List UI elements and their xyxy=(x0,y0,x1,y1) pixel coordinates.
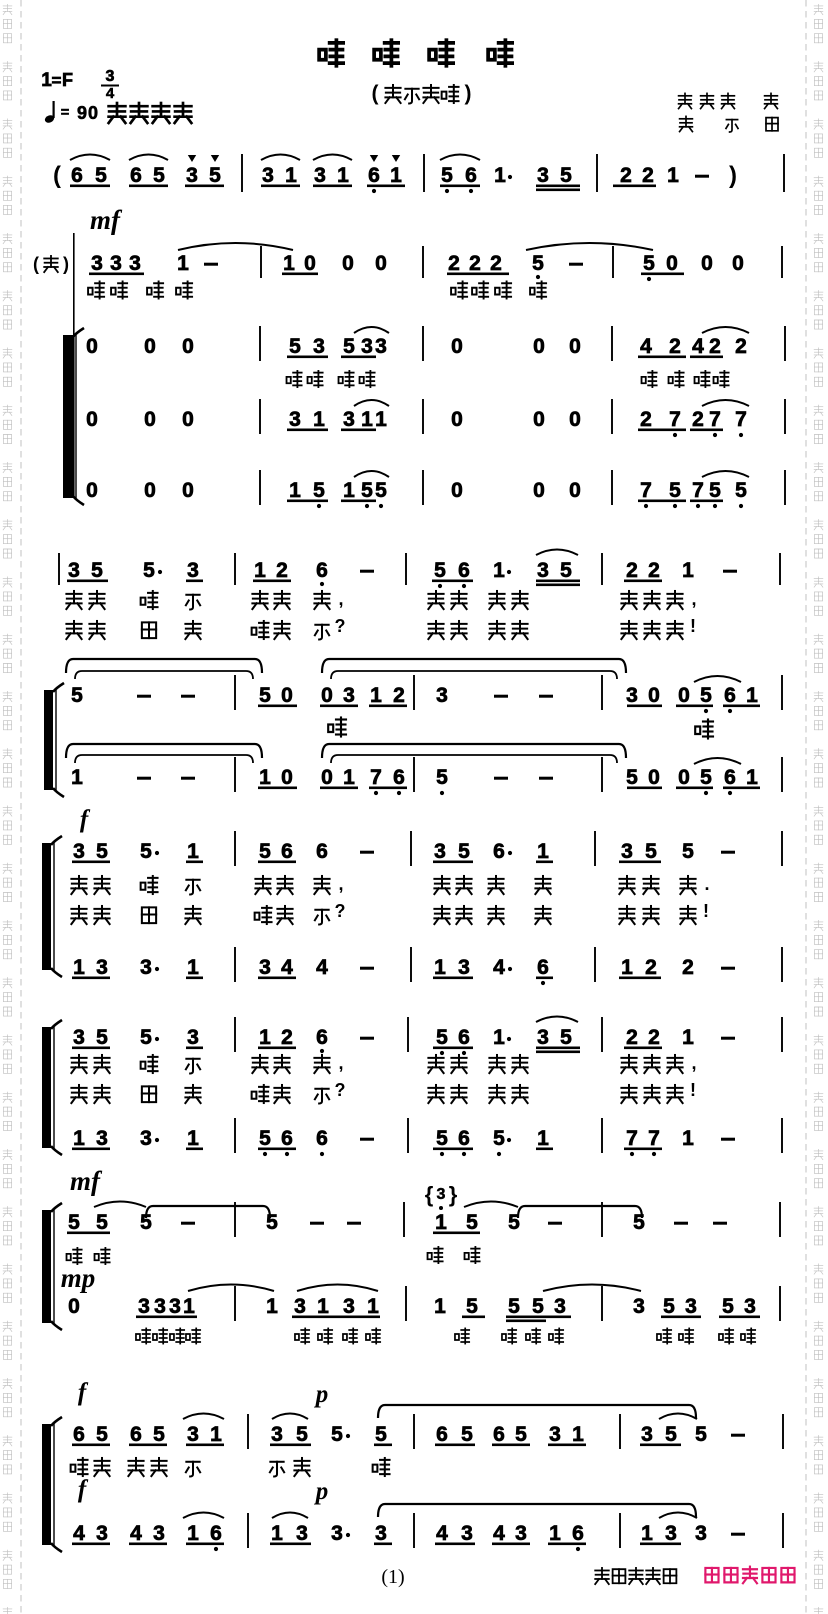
svg-text:5: 5 xyxy=(91,559,103,582)
svg-text:1: 1 xyxy=(434,956,446,979)
svg-text:3: 3 xyxy=(375,335,387,358)
svg-text:1: 1 xyxy=(285,164,297,187)
svg-text:5: 5 xyxy=(700,684,712,707)
svg-text:3: 3 xyxy=(343,408,355,431)
svg-text:3: 3 xyxy=(633,1295,645,1318)
svg-text:5: 5 xyxy=(296,1423,308,1446)
svg-text:6: 6 xyxy=(316,840,328,863)
svg-text:7: 7 xyxy=(692,479,704,502)
svg-text:1: 1 xyxy=(375,408,387,431)
svg-text:0: 0 xyxy=(648,766,660,789)
svg-text:4: 4 xyxy=(640,335,652,358)
svg-text:0: 0 xyxy=(666,252,678,275)
svg-text:5: 5 xyxy=(266,1211,278,1234)
svg-text:1: 1 xyxy=(746,766,758,789)
svg-text:3: 3 xyxy=(458,956,470,979)
svg-text:3: 3 xyxy=(153,1522,165,1545)
svg-text:5: 5 xyxy=(375,479,387,502)
svg-text:5: 5 xyxy=(140,1026,152,1049)
svg-text:5: 5 xyxy=(140,840,152,863)
svg-text:7: 7 xyxy=(735,408,747,431)
svg-text:6: 6 xyxy=(465,164,477,187)
svg-text:5: 5 xyxy=(663,1295,675,1318)
svg-text:4: 4 xyxy=(436,1522,448,1545)
svg-text:1: 1 xyxy=(494,164,506,187)
svg-text:1: 1 xyxy=(493,1026,505,1049)
svg-text:6: 6 xyxy=(281,840,293,863)
svg-text:3: 3 xyxy=(96,1127,108,1150)
svg-text:2: 2 xyxy=(469,252,481,275)
svg-text:?: ? xyxy=(335,1080,346,1100)
svg-text:F: F xyxy=(62,70,73,90)
svg-text:5: 5 xyxy=(560,164,572,187)
svg-text:4: 4 xyxy=(106,85,115,102)
svg-text:1: 1 xyxy=(343,479,355,502)
svg-text:1: 1 xyxy=(73,956,85,979)
svg-text:3: 3 xyxy=(129,252,141,275)
svg-text:1: 1 xyxy=(187,840,199,863)
svg-text:5: 5 xyxy=(313,479,325,502)
svg-text:1: 1 xyxy=(682,559,694,582)
svg-text:0: 0 xyxy=(451,408,463,431)
svg-text:2: 2 xyxy=(626,559,638,582)
svg-text:2: 2 xyxy=(448,252,460,275)
svg-text:1: 1 xyxy=(370,684,382,707)
svg-text:5: 5 xyxy=(436,1127,448,1150)
svg-text:5: 5 xyxy=(375,1423,387,1446)
svg-text:7: 7 xyxy=(669,408,681,431)
svg-text:1: 1 xyxy=(537,840,549,863)
svg-text:1: 1 xyxy=(259,766,271,789)
svg-text:5: 5 xyxy=(645,840,657,863)
svg-text:3: 3 xyxy=(313,335,325,358)
svg-text:2: 2 xyxy=(735,335,747,358)
svg-text:5: 5 xyxy=(532,252,544,275)
svg-text:6: 6 xyxy=(458,1127,470,1150)
svg-text:6: 6 xyxy=(130,164,142,187)
svg-text:3: 3 xyxy=(549,1423,561,1446)
svg-text:0: 0 xyxy=(732,252,744,275)
svg-text:1: 1 xyxy=(187,1522,199,1545)
svg-text:5: 5 xyxy=(515,1423,527,1446)
svg-text:0: 0 xyxy=(451,335,463,358)
svg-text:(1): (1) xyxy=(381,1566,404,1588)
svg-text:3: 3 xyxy=(271,1423,283,1446)
svg-text:=: = xyxy=(52,71,62,90)
svg-text:=: = xyxy=(61,104,70,121)
svg-text:5: 5 xyxy=(259,1127,271,1150)
svg-text:5: 5 xyxy=(669,479,681,502)
svg-text:1: 1 xyxy=(435,1211,447,1234)
svg-text:5: 5 xyxy=(343,335,355,358)
svg-text:6: 6 xyxy=(130,1423,142,1446)
svg-text:4: 4 xyxy=(130,1522,142,1545)
svg-text:1: 1 xyxy=(313,408,325,431)
svg-text:1: 1 xyxy=(549,1522,561,1545)
svg-text:0: 0 xyxy=(451,479,463,502)
svg-text:0: 0 xyxy=(533,335,545,358)
svg-text:,: , xyxy=(338,874,343,894)
svg-text:6: 6 xyxy=(436,1423,448,1446)
svg-text:6: 6 xyxy=(572,1522,584,1545)
svg-text:0: 0 xyxy=(182,479,194,502)
svg-text:6: 6 xyxy=(210,1522,222,1545)
svg-text:1: 1 xyxy=(271,1522,283,1545)
svg-text:4: 4 xyxy=(493,956,505,979)
svg-text:3: 3 xyxy=(187,1026,199,1049)
svg-text:0: 0 xyxy=(86,408,98,431)
svg-text:2: 2 xyxy=(393,684,405,707)
svg-text:0: 0 xyxy=(86,335,98,358)
svg-text:3: 3 xyxy=(106,68,115,85)
svg-text:3: 3 xyxy=(289,408,301,431)
svg-text:5: 5 xyxy=(700,766,712,789)
svg-text:3: 3 xyxy=(138,1295,150,1318)
svg-text:3: 3 xyxy=(187,1423,199,1446)
svg-text:0: 0 xyxy=(321,684,333,707)
svg-text:(: ( xyxy=(372,82,379,105)
svg-text:!: ! xyxy=(690,1080,696,1100)
svg-text:?: ? xyxy=(335,901,346,921)
svg-text:2: 2 xyxy=(276,559,288,582)
svg-text:6: 6 xyxy=(73,1423,85,1446)
svg-text:0: 0 xyxy=(569,335,581,358)
svg-text:3: 3 xyxy=(73,1026,85,1049)
svg-text:0: 0 xyxy=(144,335,156,358)
svg-text:1: 1 xyxy=(177,252,189,275)
svg-text:5: 5 xyxy=(695,1423,707,1446)
svg-text:1: 1 xyxy=(537,1127,549,1150)
svg-text:1: 1 xyxy=(641,1522,653,1545)
svg-text:1: 1 xyxy=(289,479,301,502)
svg-text:5: 5 xyxy=(560,559,572,582)
svg-text:1: 1 xyxy=(621,956,633,979)
svg-text:3: 3 xyxy=(140,1127,152,1150)
svg-text:6: 6 xyxy=(71,164,83,187)
svg-text:2: 2 xyxy=(669,335,681,358)
svg-text:3: 3 xyxy=(296,1522,308,1545)
svg-text:5: 5 xyxy=(735,479,747,502)
svg-text:2: 2 xyxy=(645,956,657,979)
svg-text:1: 1 xyxy=(667,164,679,187)
svg-text:1: 1 xyxy=(682,1127,694,1150)
svg-text:9: 9 xyxy=(77,103,87,123)
svg-text:{: { xyxy=(425,1182,434,1207)
svg-text:3: 3 xyxy=(537,1026,549,1049)
svg-text:3: 3 xyxy=(361,335,373,358)
svg-text:6: 6 xyxy=(537,956,549,979)
svg-text:5: 5 xyxy=(153,1423,165,1446)
svg-text:5: 5 xyxy=(560,1026,572,1049)
svg-text:2: 2 xyxy=(648,1026,660,1049)
svg-text:5: 5 xyxy=(153,164,165,187)
svg-text:0: 0 xyxy=(182,335,194,358)
svg-text:3: 3 xyxy=(685,1295,697,1318)
svg-text:5: 5 xyxy=(71,684,83,707)
svg-text:5: 5 xyxy=(682,840,694,863)
svg-text:): ) xyxy=(63,254,69,274)
svg-text:0: 0 xyxy=(701,252,713,275)
svg-text:1: 1 xyxy=(572,1423,584,1446)
svg-text:5: 5 xyxy=(461,1423,473,1446)
svg-text:1: 1 xyxy=(187,1127,199,1150)
svg-text:5: 5 xyxy=(436,766,448,789)
svg-text:3: 3 xyxy=(259,956,271,979)
svg-text:5: 5 xyxy=(96,1211,108,1234)
svg-text:3: 3 xyxy=(314,164,326,187)
svg-text:3: 3 xyxy=(331,1522,343,1545)
svg-text:3: 3 xyxy=(665,1522,677,1545)
svg-text:6: 6 xyxy=(724,684,736,707)
svg-text:5: 5 xyxy=(436,1026,448,1049)
svg-text:5: 5 xyxy=(143,559,155,582)
svg-text:): ) xyxy=(729,162,737,189)
svg-text:3: 3 xyxy=(695,1522,707,1545)
svg-text:0: 0 xyxy=(678,684,690,707)
svg-text:5: 5 xyxy=(96,840,108,863)
svg-text:1: 1 xyxy=(283,252,295,275)
svg-text:5: 5 xyxy=(493,1127,505,1150)
svg-text:7: 7 xyxy=(640,479,652,502)
svg-text:3: 3 xyxy=(744,1295,756,1318)
svg-text:0: 0 xyxy=(281,766,293,789)
svg-text:mf: mf xyxy=(90,205,123,235)
svg-text:p: p xyxy=(314,1478,329,1505)
svg-text:5: 5 xyxy=(626,766,638,789)
svg-text:5: 5 xyxy=(508,1295,520,1318)
svg-text:,: , xyxy=(691,589,696,609)
svg-text:3: 3 xyxy=(554,1295,566,1318)
svg-text:3: 3 xyxy=(641,1423,653,1446)
svg-text:5: 5 xyxy=(665,1423,677,1446)
svg-text:4: 4 xyxy=(692,335,704,358)
svg-text:7: 7 xyxy=(709,408,721,431)
svg-text:1: 1 xyxy=(183,1295,195,1318)
svg-text:1: 1 xyxy=(71,766,83,789)
svg-text:4: 4 xyxy=(281,956,293,979)
svg-text:1: 1 xyxy=(337,164,349,187)
svg-text:5: 5 xyxy=(68,1211,80,1234)
svg-text:5: 5 xyxy=(722,1295,734,1318)
svg-text:3: 3 xyxy=(537,559,549,582)
svg-text:3: 3 xyxy=(621,840,633,863)
svg-text:1: 1 xyxy=(434,1295,446,1318)
svg-text:5: 5 xyxy=(643,252,655,275)
svg-text:5: 5 xyxy=(709,479,721,502)
svg-text:1: 1 xyxy=(266,1295,278,1318)
svg-text:0: 0 xyxy=(144,479,156,502)
svg-text:3: 3 xyxy=(96,1522,108,1545)
svg-text:3: 3 xyxy=(461,1522,473,1545)
svg-text:0: 0 xyxy=(304,252,316,275)
svg-text:): ) xyxy=(465,82,472,105)
svg-text:5: 5 xyxy=(96,1423,108,1446)
svg-text:6: 6 xyxy=(493,1423,505,1446)
svg-text:1: 1 xyxy=(317,1295,329,1318)
svg-text:1: 1 xyxy=(343,766,355,789)
svg-text:2: 2 xyxy=(490,252,502,275)
svg-text:3: 3 xyxy=(434,840,446,863)
svg-text:5: 5 xyxy=(259,684,271,707)
svg-text:!: ! xyxy=(703,901,709,921)
svg-text:2: 2 xyxy=(682,956,694,979)
svg-text:(: ( xyxy=(33,254,39,274)
svg-text:1: 1 xyxy=(390,164,402,187)
svg-text:3: 3 xyxy=(140,956,152,979)
svg-text:6: 6 xyxy=(281,1127,293,1150)
svg-text:mf: mf xyxy=(70,1166,103,1196)
svg-text:3: 3 xyxy=(91,252,103,275)
svg-text:0: 0 xyxy=(533,408,545,431)
svg-text:5: 5 xyxy=(361,479,373,502)
svg-text:5: 5 xyxy=(434,559,446,582)
svg-text:0: 0 xyxy=(86,479,98,502)
svg-text:6: 6 xyxy=(316,1026,328,1049)
svg-text:.: . xyxy=(704,874,709,894)
svg-text:6: 6 xyxy=(316,559,328,582)
svg-text:0: 0 xyxy=(569,408,581,431)
svg-text:mp: mp xyxy=(61,1263,96,1293)
svg-text:5: 5 xyxy=(289,335,301,358)
svg-text:6: 6 xyxy=(458,559,470,582)
svg-text:3: 3 xyxy=(294,1295,306,1318)
svg-text:3: 3 xyxy=(375,1522,387,1545)
svg-text:6: 6 xyxy=(393,766,405,789)
svg-text:5: 5 xyxy=(331,1423,343,1446)
svg-text:6: 6 xyxy=(493,840,505,863)
svg-text:4: 4 xyxy=(493,1522,505,1545)
svg-text:3: 3 xyxy=(262,164,274,187)
svg-text:,: , xyxy=(691,1053,696,1073)
svg-text:?: ? xyxy=(335,616,346,636)
svg-text:5: 5 xyxy=(259,840,271,863)
svg-text:3: 3 xyxy=(187,559,199,582)
svg-text:3: 3 xyxy=(96,956,108,979)
svg-text:6: 6 xyxy=(724,766,736,789)
svg-text:,: , xyxy=(338,589,343,609)
svg-text:4: 4 xyxy=(316,956,328,979)
svg-text:(: ( xyxy=(53,162,61,189)
svg-text:0: 0 xyxy=(342,252,354,275)
svg-text:5: 5 xyxy=(466,1211,478,1234)
svg-text:1: 1 xyxy=(254,559,266,582)
svg-text:1: 1 xyxy=(259,1026,271,1049)
svg-text:2: 2 xyxy=(626,1026,638,1049)
svg-text:0: 0 xyxy=(648,684,660,707)
svg-text:1: 1 xyxy=(746,684,758,707)
svg-text:0: 0 xyxy=(88,103,98,123)
svg-text:1: 1 xyxy=(493,559,505,582)
svg-text:3: 3 xyxy=(437,1186,446,1203)
svg-text:2: 2 xyxy=(640,408,652,431)
svg-text:5: 5 xyxy=(441,164,453,187)
svg-text:}: } xyxy=(449,1182,458,1207)
svg-text:3: 3 xyxy=(110,252,122,275)
svg-text:1: 1 xyxy=(187,956,199,979)
svg-text:3: 3 xyxy=(169,1295,181,1318)
svg-text:0: 0 xyxy=(144,408,156,431)
svg-text:3: 3 xyxy=(626,684,638,707)
svg-text:p: p xyxy=(314,1381,329,1408)
svg-text:0: 0 xyxy=(375,252,387,275)
svg-text:5: 5 xyxy=(95,164,107,187)
svg-text:1: 1 xyxy=(361,408,373,431)
svg-text:3: 3 xyxy=(73,840,85,863)
svg-text:0: 0 xyxy=(678,766,690,789)
svg-text:5: 5 xyxy=(633,1211,645,1234)
svg-text:2: 2 xyxy=(620,164,632,187)
svg-text:0: 0 xyxy=(569,479,581,502)
svg-text:2: 2 xyxy=(648,559,660,582)
svg-text:3: 3 xyxy=(343,684,355,707)
svg-text:3: 3 xyxy=(537,164,549,187)
svg-text:2: 2 xyxy=(709,335,721,358)
svg-text:0: 0 xyxy=(68,1295,80,1318)
svg-text:5: 5 xyxy=(96,1026,108,1049)
svg-text:0: 0 xyxy=(281,684,293,707)
svg-text:6: 6 xyxy=(316,1127,328,1150)
svg-text:3: 3 xyxy=(436,684,448,707)
svg-text:1: 1 xyxy=(210,1423,222,1446)
svg-text:5: 5 xyxy=(209,164,221,187)
svg-text:5: 5 xyxy=(532,1295,544,1318)
svg-text:,: , xyxy=(338,1053,343,1073)
svg-text:6: 6 xyxy=(368,164,380,187)
svg-text:2: 2 xyxy=(692,408,704,431)
svg-text:7: 7 xyxy=(626,1127,638,1150)
svg-text:3: 3 xyxy=(343,1295,355,1318)
svg-text:0: 0 xyxy=(321,766,333,789)
svg-text:7: 7 xyxy=(370,766,382,789)
svg-text:5: 5 xyxy=(458,840,470,863)
svg-text:!: ! xyxy=(690,616,696,636)
svg-text:2: 2 xyxy=(642,164,654,187)
svg-text:3: 3 xyxy=(154,1295,166,1318)
svg-text:1: 1 xyxy=(367,1295,379,1318)
svg-text:5: 5 xyxy=(466,1295,478,1318)
svg-text:2: 2 xyxy=(281,1026,293,1049)
svg-text:3: 3 xyxy=(186,164,198,187)
svg-text:3: 3 xyxy=(68,559,80,582)
svg-text:1: 1 xyxy=(73,1127,85,1150)
svg-text:4: 4 xyxy=(73,1522,85,1545)
svg-text:0: 0 xyxy=(182,408,194,431)
svg-text:1: 1 xyxy=(682,1026,694,1049)
svg-text:0: 0 xyxy=(533,479,545,502)
svg-text:6: 6 xyxy=(458,1026,470,1049)
svg-text:3: 3 xyxy=(515,1522,527,1545)
svg-text:7: 7 xyxy=(648,1127,660,1150)
